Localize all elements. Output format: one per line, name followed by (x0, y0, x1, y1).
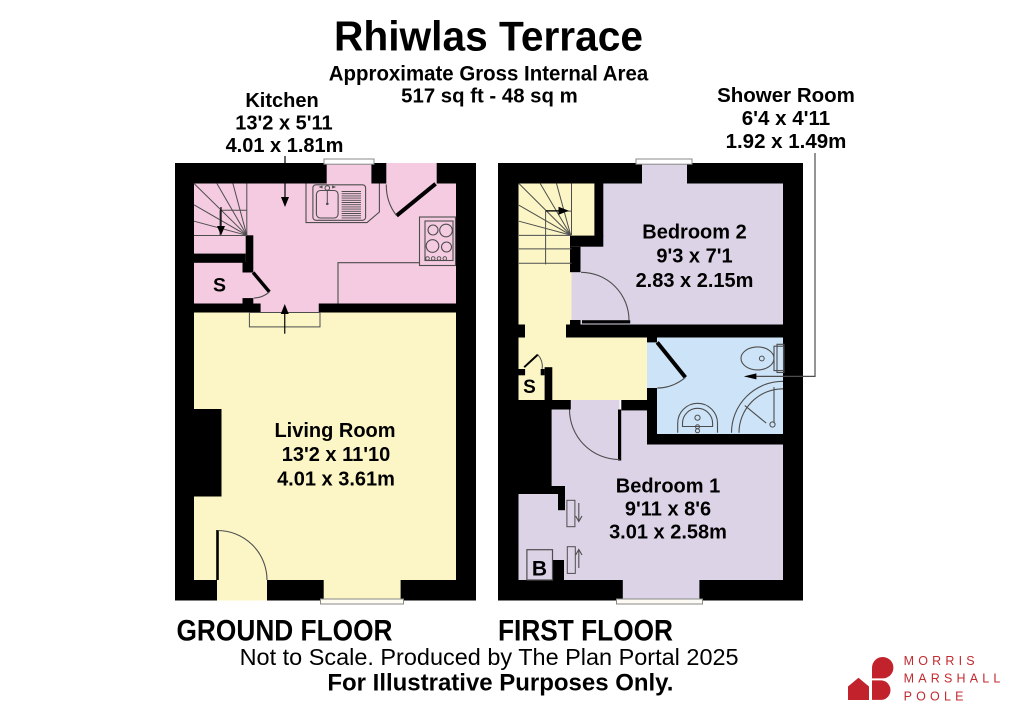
svg-text:S: S (213, 274, 226, 296)
svg-text:B: B (532, 558, 547, 581)
svg-text:Not to Scale. Produced by The: Not to Scale. Produced by The Plan Porta… (240, 644, 739, 670)
svg-text:Bedroom 2: Bedroom 2 (642, 221, 746, 243)
svg-text:GROUND FLOOR: GROUND FLOOR (177, 615, 393, 648)
svg-text:2.83 x 2.15m: 2.83 x 2.15m (636, 270, 754, 292)
svg-text:9'11 x 8'6: 9'11 x 8'6 (625, 498, 711, 520)
svg-text:Rhiwlas Terrace: Rhiwlas Terrace (334, 13, 643, 60)
svg-text:S: S (523, 377, 536, 398)
svg-text:FIRST FLOOR: FIRST FLOOR (498, 615, 673, 648)
svg-text:Bedroom 1: Bedroom 1 (616, 475, 720, 497)
svg-text:13'2 x 11'10: 13'2 x 11'10 (282, 444, 391, 466)
svg-text:517 sq ft - 48 sq m: 517 sq ft - 48 sq m (401, 86, 578, 108)
svg-text:3.01 x 2.58m: 3.01 x 2.58m (609, 522, 727, 544)
svg-text:Approximate Gross Internal Are: Approximate Gross Internal Area (329, 63, 649, 86)
svg-text:6'4 x 4'11: 6'4 x 4'11 (742, 107, 830, 130)
svg-text:4.01 x 1.81m: 4.01 x 1.81m (226, 135, 344, 157)
svg-text:1.92 x 1.49m: 1.92 x 1.49m (726, 130, 847, 153)
svg-text:4.01 x 3.61m: 4.01 x 3.61m (277, 469, 395, 491)
svg-text:Kitchen: Kitchen (245, 90, 318, 112)
svg-text:For Illustrative Purposes Only: For Illustrative Purposes Only. (327, 670, 673, 697)
svg-text:13'2 x 5'11: 13'2 x 5'11 (235, 113, 332, 135)
svg-text:POOLE: POOLE (904, 689, 968, 703)
svg-text:Living Room: Living Room (274, 420, 395, 442)
svg-text:MORRIS: MORRIS (904, 654, 979, 668)
svg-text:Shower Room: Shower Room (717, 84, 855, 107)
svg-text:9'3 x 7'1: 9'3 x 7'1 (656, 246, 732, 268)
svg-text:MARSHALL: MARSHALL (904, 672, 1005, 686)
